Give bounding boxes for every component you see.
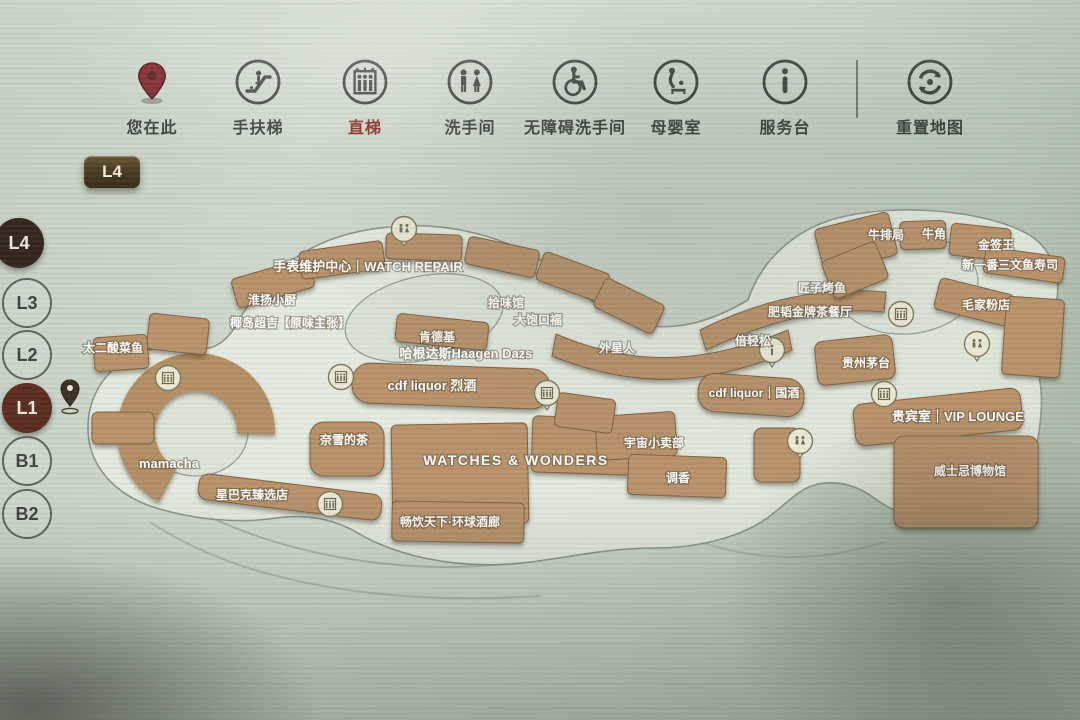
store-label[interactable]: 奈雪的茶 [319, 432, 369, 447]
elevator-map-icon [889, 302, 914, 327]
store-label[interactable]: 淮扬小厨 [248, 292, 296, 307]
store-label[interactable]: 太二酸菜鱼 [83, 340, 143, 355]
store-label[interactable]: 哈根达斯Haagen Dazs [400, 346, 533, 361]
store-label[interactable]: 外星人 [599, 340, 636, 355]
store-block[interactable] [92, 412, 154, 444]
store-label[interactable]: 新一番三文鱼寿司 [962, 257, 1058, 272]
mall-map: 手表维护中心｜WATCH REPAIR淮扬小厨椰岛超吉【原味主张】太二酸菜鱼肯德… [0, 0, 1080, 720]
elevator-map-icon [872, 382, 897, 407]
store-block[interactable] [310, 422, 384, 476]
store-label[interactable]: 匠子烤鱼 [798, 280, 846, 295]
store-label[interactable]: 调香 [666, 470, 690, 485]
store-label[interactable]: 星巴克臻选店 [216, 487, 288, 502]
store-label[interactable]: 牛角 [922, 226, 946, 241]
store-label[interactable]: 肥韬金牌茶餐厅 [768, 304, 852, 319]
store-label[interactable]: 畅饮天下·环球酒廊 [400, 514, 500, 529]
store-block[interactable] [894, 436, 1038, 528]
store-label[interactable]: 宇宙小卖部 [624, 435, 684, 450]
store-label[interactable]: cdf liquor｜国酒 [709, 385, 800, 400]
store-label[interactable]: 贵州茅台 [842, 355, 890, 370]
store-label[interactable]: 拾味馆 [488, 295, 524, 310]
store-block[interactable] [146, 313, 209, 355]
store-label[interactable]: 金签王 [977, 237, 1014, 252]
store-label[interactable]: 倍轻松 [735, 333, 771, 348]
elevator-map-icon [156, 366, 181, 391]
store-label[interactable]: 肯德基 [419, 329, 456, 344]
store-label[interactable]: 牛排局 [868, 227, 904, 242]
store-label[interactable]: 贵宾室｜VIP LOUNGE [892, 409, 1024, 424]
store-label[interactable]: WATCHES & WONDERS [423, 452, 608, 468]
elevator-map-icon [318, 492, 343, 517]
kiosk-screen: 您在此 手扶梯 直梯 洗手间 无障碍洗手间 母婴室 服务台 [0, 0, 1080, 720]
store-label[interactable]: 大饱口福 [514, 312, 562, 327]
store-label[interactable]: 手表维护中心｜WATCH REPAIR [273, 259, 463, 274]
store-label[interactable]: 威士忌博物馆 [934, 463, 1006, 478]
store-label[interactable]: mamacha [139, 456, 200, 471]
store-block[interactable] [1001, 296, 1064, 378]
store-label[interactable]: 椰岛超吉【原味主张】 [230, 315, 350, 330]
store-label[interactable]: 毛家粉店 [962, 297, 1010, 312]
you-are-here-map-pin [61, 380, 79, 414]
elevator-map-icon [329, 365, 354, 390]
store-label[interactable]: cdf liquor 烈酒 [388, 378, 477, 393]
road-line [700, 542, 884, 557]
store-block[interactable] [554, 392, 616, 434]
